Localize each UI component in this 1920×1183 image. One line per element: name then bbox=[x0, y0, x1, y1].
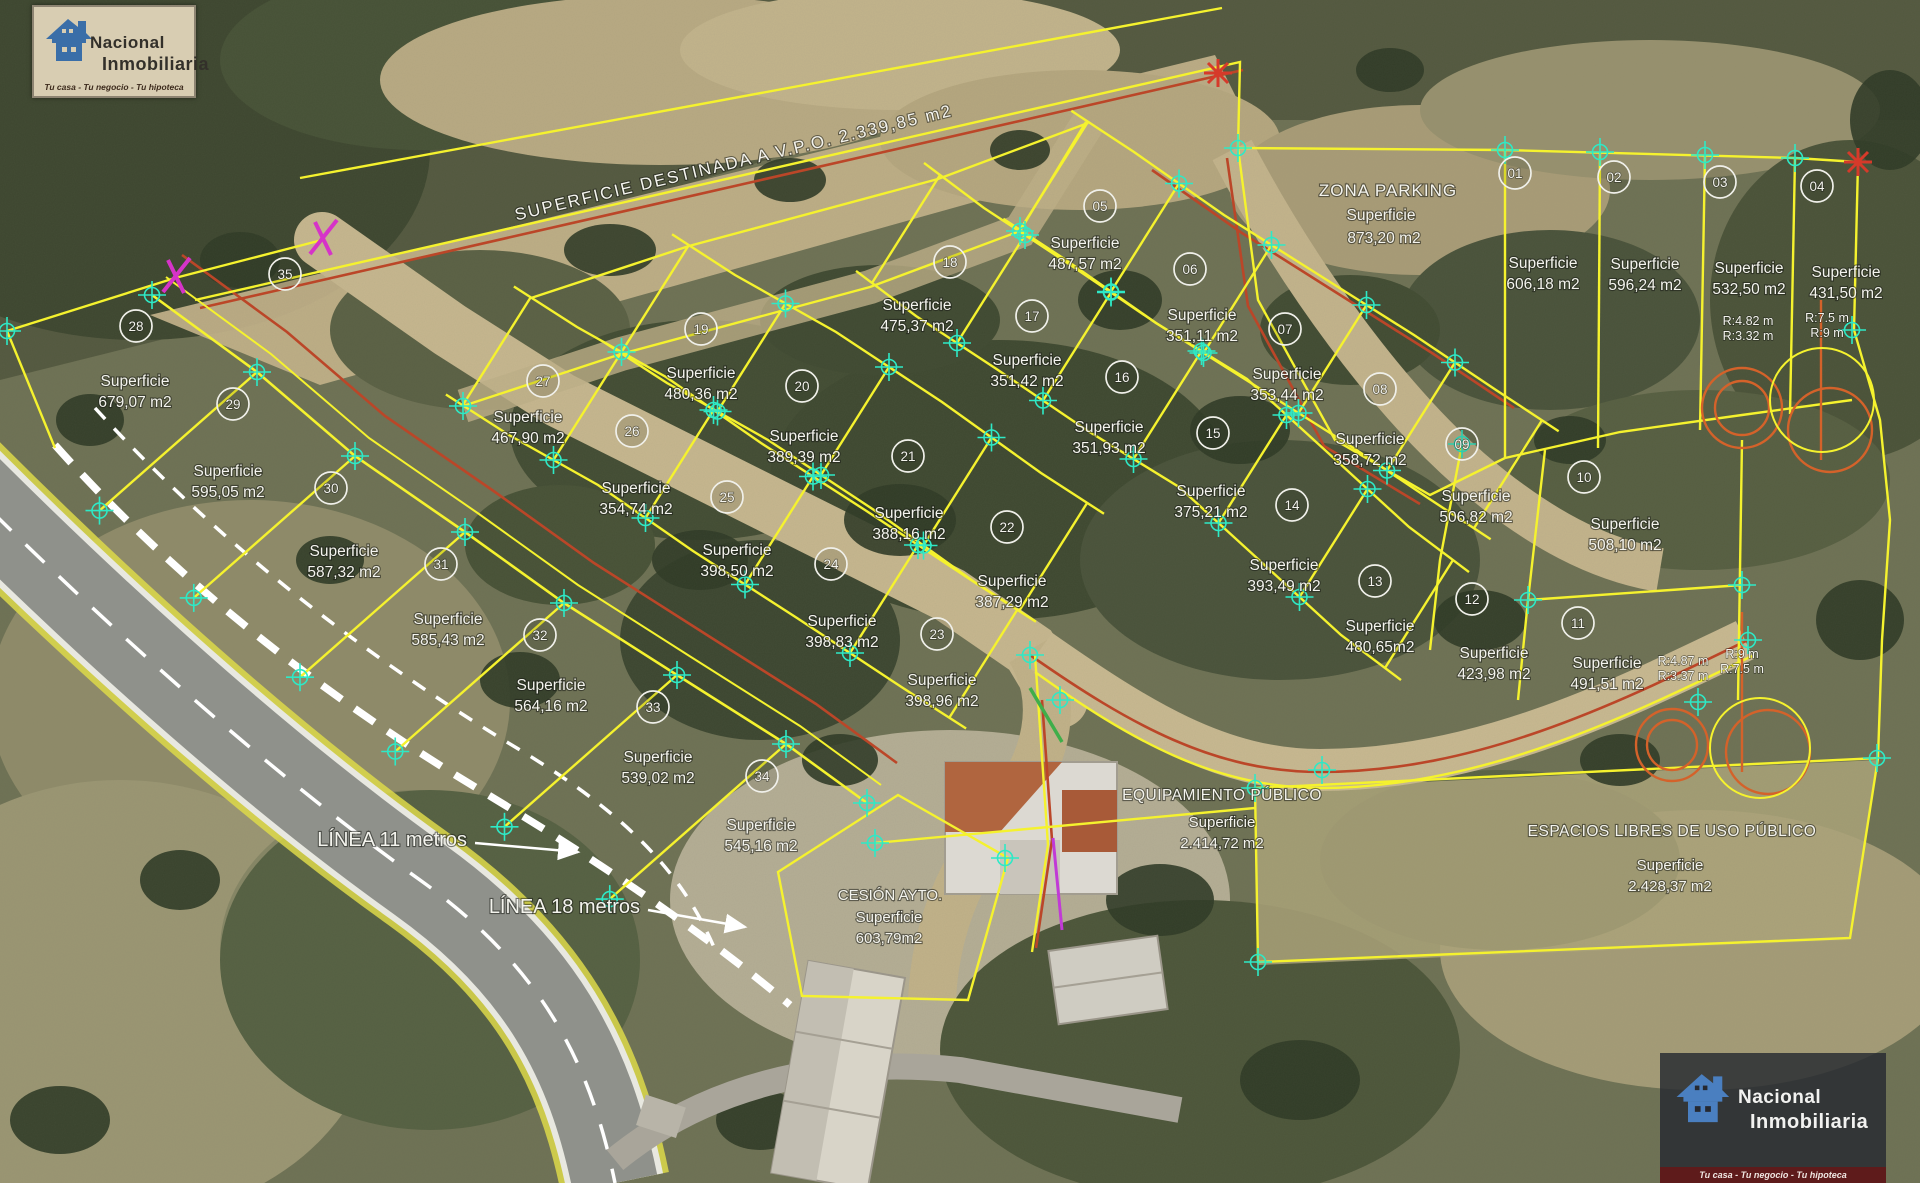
parcel-map-screenshot: 01Superficie606,18 m202Superficie596,24 … bbox=[0, 0, 1920, 1183]
plot-area-value: 398,83 m2 bbox=[805, 634, 878, 651]
plot-area-value: 491,51 m2 bbox=[1570, 676, 1643, 693]
plot-area-value: 532,50 m2 bbox=[1712, 281, 1785, 298]
logo-bottom-right: Nacional Inmobiliaria Tu casa - Tu negoc… bbox=[1660, 1053, 1886, 1183]
plot-area-value: 354,74 m2 bbox=[599, 501, 672, 518]
plot-area-value: 596,24 m2 bbox=[1608, 277, 1681, 294]
plot-superficie-word: Superficie bbox=[1346, 618, 1415, 635]
plot-superficie-word: Superficie bbox=[808, 613, 877, 630]
logo-top-left: Nacional Inmobiliaria Tu casa - Tu negoc… bbox=[32, 5, 196, 98]
plot-area-value: 587,32 m2 bbox=[307, 564, 380, 581]
plot-superficie-word: Superficie bbox=[1177, 483, 1246, 500]
linea-11-label: LÍNEA 11 metros bbox=[317, 828, 467, 851]
plot-superficie-word: Superficie bbox=[908, 672, 977, 689]
plot-superficie-word: Superficie bbox=[1573, 655, 1642, 672]
plot-superficie-word: Superficie bbox=[1253, 366, 1322, 383]
plot-superficie-word: Superficie bbox=[1250, 557, 1319, 574]
plot-superficie-word: Superficie bbox=[770, 428, 839, 445]
plot-number: 26 bbox=[624, 424, 639, 439]
plot-number: 14 bbox=[1284, 498, 1300, 513]
house-icon bbox=[1672, 1067, 1736, 1127]
plot-area-value: 585,43 m2 bbox=[411, 632, 484, 649]
plot-superficie-word: Superficie bbox=[667, 365, 736, 382]
plot-superficie-word: Superficie bbox=[875, 505, 944, 522]
logo-tagline: Tu casa - Tu negocio - Tu hipoteca bbox=[1660, 1167, 1886, 1183]
plot-number: 34 bbox=[754, 769, 770, 784]
plot-area-value: 480,36 m2 bbox=[664, 386, 737, 403]
plot-number: 30 bbox=[323, 481, 338, 496]
plot-number: 15 bbox=[1205, 426, 1220, 441]
plot-area-value: 398,50 m2 bbox=[700, 563, 773, 580]
plot-superficie-word: Superficie bbox=[727, 817, 796, 834]
plot-area-value: 423,98 m2 bbox=[1457, 666, 1530, 683]
plot-number: 09 bbox=[1454, 437, 1469, 452]
plot-number: 31 bbox=[433, 557, 448, 572]
plot-superficie-word: Superficie bbox=[1715, 260, 1784, 277]
plot-area-value: 351,42 m2 bbox=[990, 373, 1063, 390]
plot-number: 18 bbox=[942, 255, 957, 270]
plot-number: 25 bbox=[719, 490, 734, 505]
plot-superficie-word: Superficie bbox=[517, 677, 586, 694]
plot-number: 29 bbox=[225, 397, 240, 412]
plot-number: 35 bbox=[277, 267, 292, 282]
plot-number: 01 bbox=[1507, 166, 1522, 181]
plot-number: 28 bbox=[128, 319, 143, 334]
plot-superficie-word: Superficie bbox=[602, 480, 671, 497]
equipamiento-title: EQUIPAMIENTO PÚBLICO bbox=[1122, 787, 1322, 804]
plot-superficie-word: Superficie bbox=[1051, 235, 1120, 252]
plot-number: 27 bbox=[535, 374, 550, 389]
espacios-area: 2.428,37 m2 bbox=[1628, 878, 1711, 895]
plot-number: 02 bbox=[1606, 170, 1621, 185]
plot-area-value: 353,44 m2 bbox=[1250, 387, 1323, 404]
plot-superficie-word: Superficie bbox=[703, 542, 772, 559]
equipamiento-area: 2.414,72 m2 bbox=[1180, 835, 1263, 852]
plot-superficie-word: Superficie bbox=[1460, 645, 1529, 662]
plot-area-value: 679,07 m2 bbox=[98, 394, 171, 411]
plot-superficie-word: Superficie bbox=[1442, 488, 1511, 505]
plot-area-value: 388,16 m2 bbox=[872, 526, 945, 543]
radius-label: R:3.37 m bbox=[1658, 669, 1709, 683]
plot-number: 24 bbox=[823, 557, 839, 572]
plot-area-value: 487,57 m2 bbox=[1048, 256, 1121, 273]
plot-number: 03 bbox=[1712, 175, 1727, 190]
logo-tagline: Tu casa - Tu negocio - Tu hipoteca bbox=[34, 80, 194, 96]
plot-area-value: 508,10 m2 bbox=[1588, 537, 1661, 554]
plot-number: 10 bbox=[1576, 470, 1591, 485]
plot-number: 22 bbox=[999, 520, 1014, 535]
plot-area-value: 389,39 m2 bbox=[767, 449, 840, 466]
logo-name-line2: Inmobiliaria bbox=[1750, 1111, 1868, 1134]
plot-number: 17 bbox=[1024, 309, 1039, 324]
radius-label: R:9 m bbox=[1725, 647, 1758, 661]
plot-area-value: 398,96 m2 bbox=[905, 693, 978, 710]
plot-area-value: 467,90 m2 bbox=[491, 430, 564, 447]
radius-label: R:4.87 m bbox=[1658, 654, 1709, 668]
plot-superficie-word: Superficie bbox=[978, 573, 1047, 590]
espacios-title: ESPACIOS LIBRES DE USO PÚBLICO bbox=[1528, 823, 1817, 840]
plot-number: 19 bbox=[693, 322, 708, 337]
plot-superficie-word: Superficie bbox=[101, 373, 170, 390]
plot-superficie-word: Superficie bbox=[624, 749, 693, 766]
plot-superficie-word: Superficie bbox=[1075, 419, 1144, 436]
plot-number: 21 bbox=[900, 449, 915, 464]
plot-superficie-word: Superficie bbox=[194, 463, 263, 480]
plot-area-value: 564,16 m2 bbox=[514, 698, 587, 715]
plot-superficie-word: Superficie bbox=[494, 409, 563, 426]
plot-number: 33 bbox=[645, 700, 660, 715]
plot-number: 13 bbox=[1367, 574, 1382, 589]
plot-superficie-word: Superficie bbox=[1591, 516, 1660, 533]
equipamiento-word: Superficie bbox=[1189, 814, 1256, 831]
plot-number: 11 bbox=[1571, 616, 1585, 631]
plot-number: 06 bbox=[1182, 262, 1197, 277]
linea-18-label: LÍNEA 18 metros bbox=[489, 895, 640, 918]
radius-label: R:7.5 m bbox=[1805, 311, 1849, 325]
plot-number: 12 bbox=[1464, 592, 1479, 607]
plot-area-value: 351,93 m2 bbox=[1072, 440, 1145, 457]
plot-number: 04 bbox=[1809, 179, 1825, 194]
zona-parking-title: ZONA PARKING bbox=[1319, 181, 1457, 200]
plot-number: 23 bbox=[929, 627, 944, 642]
terrain-aerial-photo bbox=[0, 0, 1920, 1183]
plot-area-value: 595,05 m2 bbox=[191, 484, 264, 501]
cesion-word: Superficie bbox=[856, 909, 923, 926]
plot-number: 05 bbox=[1092, 199, 1107, 214]
plot-number: 16 bbox=[1114, 370, 1129, 385]
plot-label: 35 bbox=[269, 258, 301, 290]
plot-area-value: 475,37 m2 bbox=[880, 318, 953, 335]
plot-area-value: 387,29 m2 bbox=[975, 594, 1048, 611]
plot-number: 32 bbox=[532, 628, 547, 643]
radius-label: R:3.32 m bbox=[1723, 329, 1774, 343]
plot-superficie-word: Superficie bbox=[883, 297, 952, 314]
plot-superficie-word: Superficie bbox=[1509, 255, 1578, 272]
logo-name-line1: Nacional bbox=[90, 33, 165, 53]
zona-parking-word: Superficie bbox=[1347, 207, 1416, 224]
plot-number: 07 bbox=[1277, 322, 1292, 337]
plot-area-value: 375,21 m2 bbox=[1174, 504, 1247, 521]
radius-label: R:9 m bbox=[1810, 326, 1843, 340]
logo-name-line2: Inmobiliaria bbox=[102, 54, 209, 75]
plot-area-value: 351,11 m2 bbox=[1166, 328, 1238, 345]
plot-number: 08 bbox=[1372, 382, 1387, 397]
plot-area-value: 506,82 m2 bbox=[1439, 509, 1512, 526]
plot-area-value: 358,72 m2 bbox=[1333, 452, 1406, 469]
plot-area-value: 393,49 m2 bbox=[1247, 578, 1320, 595]
radius-label: R:7.5 m bbox=[1720, 662, 1764, 676]
logo-name-line1: Nacional bbox=[1738, 1087, 1821, 1109]
plot-superficie-word: Superficie bbox=[310, 543, 379, 560]
plot-superficie-word: Superficie bbox=[1812, 264, 1881, 281]
plot-area-value: 545,16 m2 bbox=[724, 838, 797, 855]
plot-superficie-word: Superficie bbox=[1168, 307, 1237, 324]
aerial-parcel-plan: 01Superficie606,18 m202Superficie596,24 … bbox=[0, 0, 1920, 1183]
plot-number: 20 bbox=[794, 379, 809, 394]
radius-label: R:4.82 m bbox=[1723, 314, 1774, 328]
plot-superficie-word: Superficie bbox=[1611, 256, 1680, 273]
plot-area-value: 606,18 m2 bbox=[1506, 276, 1579, 293]
plot-area-value: 431,50 m2 bbox=[1809, 285, 1882, 302]
plot-superficie-word: Superficie bbox=[993, 352, 1062, 369]
plot-area-value: 480,65m2 bbox=[1346, 639, 1415, 656]
plot-superficie-word: Superficie bbox=[414, 611, 483, 628]
cesion-area: 603,79m2 bbox=[856, 930, 923, 947]
plot-superficie-word: Superficie bbox=[1336, 431, 1405, 448]
plot-area-value: 539,02 m2 bbox=[621, 770, 694, 787]
cesion-title: CESIÓN AYTO. bbox=[838, 887, 942, 904]
espacios-word: Superficie bbox=[1637, 857, 1704, 874]
zona-parking-area: 873,20 m2 bbox=[1347, 230, 1420, 247]
